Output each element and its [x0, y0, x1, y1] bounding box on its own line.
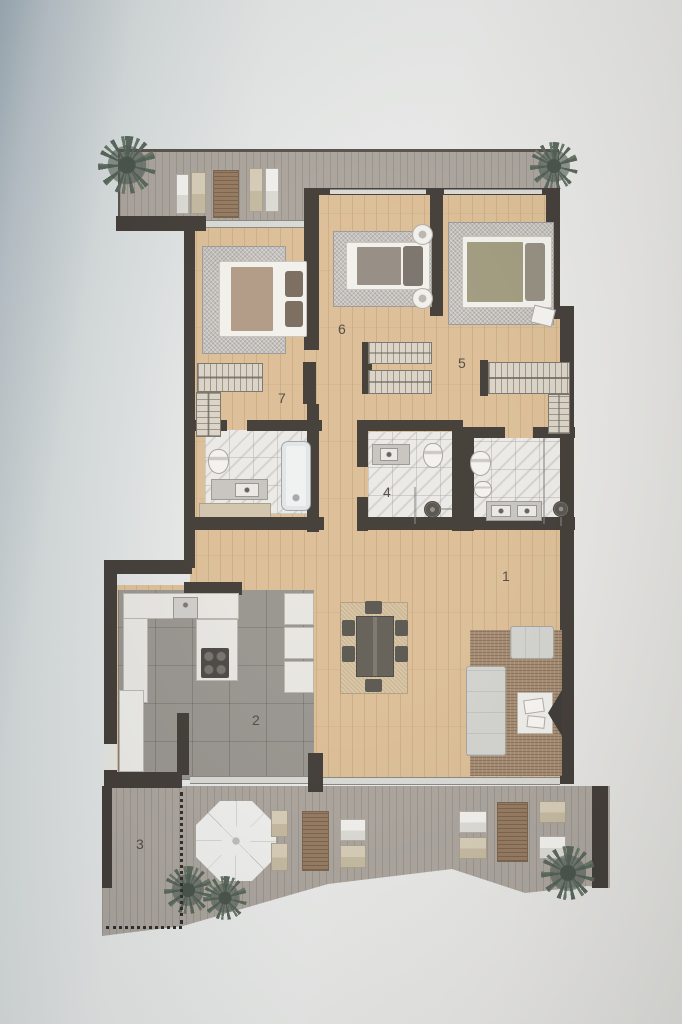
shower-arm: [440, 508, 452, 510]
toilet: [208, 449, 229, 474]
cooktop: [201, 648, 229, 678]
kitchen-sink: [173, 597, 198, 619]
wall: [104, 560, 192, 574]
magazines: [523, 698, 545, 715]
palm-plant: [530, 142, 578, 190]
wardrobe: [368, 370, 432, 394]
sink-basin: [517, 505, 537, 517]
pantry-unit: [119, 690, 144, 772]
sun-lounger: [191, 172, 206, 214]
sun-lounger: [459, 837, 487, 859]
sun-lounger: [249, 168, 263, 212]
wardrobe: [548, 394, 570, 434]
sun-lounger: [340, 845, 366, 868]
room-label-bedroom-6: 6: [338, 321, 346, 337]
wall: [452, 420, 463, 531]
wardrobe: [197, 363, 263, 392]
sun-lounger: [176, 174, 189, 214]
wall: [102, 786, 112, 888]
dining-chair: [395, 620, 408, 636]
wall: [357, 420, 463, 431]
bidet: [474, 481, 492, 498]
sun-lounger: [265, 168, 279, 212]
door-opening: [104, 744, 117, 770]
toilet: [423, 443, 443, 468]
bed-blanket: [467, 242, 523, 302]
sun-lounger: [539, 801, 566, 823]
appliance-column: [284, 661, 314, 693]
wall: [303, 362, 316, 404]
bed-blanket: [231, 267, 273, 331]
sun-lounger: [459, 811, 487, 833]
shower-screen: [414, 487, 416, 524]
room-label-bathroom: 4: [383, 484, 391, 500]
room-label-kitchen: 2: [252, 712, 260, 728]
sink-basin: [380, 448, 398, 461]
outdoor-rug: [497, 802, 528, 862]
outdoor-rug: [302, 811, 329, 871]
palm-plant: [203, 876, 247, 920]
bed-pillow: [285, 271, 303, 297]
armchair: [510, 626, 554, 659]
wall: [184, 222, 195, 568]
sliding-glass-door: [206, 220, 306, 228]
balcony-edge: [118, 149, 559, 152]
wardrobe: [368, 342, 432, 364]
sliding-glass-door: [330, 189, 426, 194]
sun-lounger: [340, 819, 366, 841]
room-label-terrace: 3: [136, 836, 144, 852]
shower-head: [424, 501, 441, 518]
floor-plan: 1 2 3 4 5 6 7: [0, 0, 682, 1024]
shower-arm: [560, 517, 562, 526]
shower-screen: [543, 438, 545, 524]
wall: [308, 753, 323, 792]
room-label-bedroom-5: 5: [458, 355, 466, 371]
sun-lounger: [271, 843, 288, 871]
outdoor-rug: [213, 170, 239, 218]
terrace-boundary-dotted: [180, 792, 185, 924]
sliding-glass-door: [190, 776, 310, 784]
sofa: [466, 666, 506, 756]
round-pouf: [412, 288, 433, 309]
appliance-oven: [284, 627, 314, 659]
dining-chair: [365, 601, 382, 614]
appliance-fridge: [284, 593, 314, 625]
wardrobe: [196, 392, 221, 437]
wall: [195, 517, 324, 530]
dining-chair: [342, 620, 355, 636]
round-pouf: [412, 224, 433, 245]
magazines: [526, 715, 545, 729]
wall: [463, 427, 474, 531]
wall: [104, 772, 182, 788]
sink-basin: [491, 505, 511, 517]
palm-plant: [98, 136, 156, 194]
dining-chair: [395, 646, 408, 662]
sliding-glass-door: [323, 777, 560, 785]
bed-pillow: [525, 243, 545, 301]
dining-table: [356, 616, 394, 677]
sun-lounger: [271, 810, 288, 837]
room-label-bedroom-7: 7: [278, 390, 286, 406]
sliding-glass-door: [444, 189, 542, 194]
shower-head: [553, 501, 569, 517]
wall: [357, 431, 368, 467]
sink-basin: [235, 483, 259, 497]
parasol: [196, 801, 276, 881]
wardrobe: [488, 362, 570, 394]
room-label-living: 1: [502, 568, 510, 584]
bathtub: [281, 441, 311, 511]
palm-plant: [541, 846, 595, 900]
wall: [177, 713, 189, 775]
terrace-boundary-dotted: [106, 926, 182, 931]
toilet: [470, 451, 491, 476]
bed-blanket: [357, 247, 401, 285]
bed-pillow: [285, 301, 303, 327]
bed-pillow: [403, 246, 423, 286]
dining-chair: [342, 646, 355, 662]
wall: [480, 360, 488, 396]
dining-chair: [365, 679, 382, 692]
